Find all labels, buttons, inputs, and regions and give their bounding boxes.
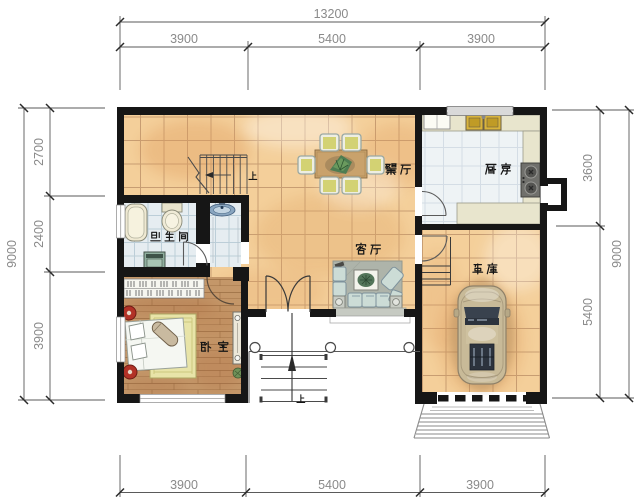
svg-text:9000: 9000 — [610, 240, 624, 268]
svg-text:2700: 2700 — [32, 138, 46, 166]
svg-text:3900: 3900 — [32, 322, 46, 350]
svg-text:3900: 3900 — [467, 32, 495, 46]
svg-text:3900: 3900 — [466, 478, 494, 492]
svg-text:3600: 3600 — [581, 154, 595, 182]
svg-text:5400: 5400 — [318, 32, 346, 46]
svg-text:5400: 5400 — [581, 298, 595, 326]
svg-text:9000: 9000 — [5, 240, 19, 268]
svg-text:3900: 3900 — [170, 32, 198, 46]
svg-text:5400: 5400 — [318, 478, 346, 492]
svg-text:3900: 3900 — [170, 478, 198, 492]
svg-text:13200: 13200 — [314, 7, 349, 21]
svg-text:2400: 2400 — [32, 220, 46, 248]
